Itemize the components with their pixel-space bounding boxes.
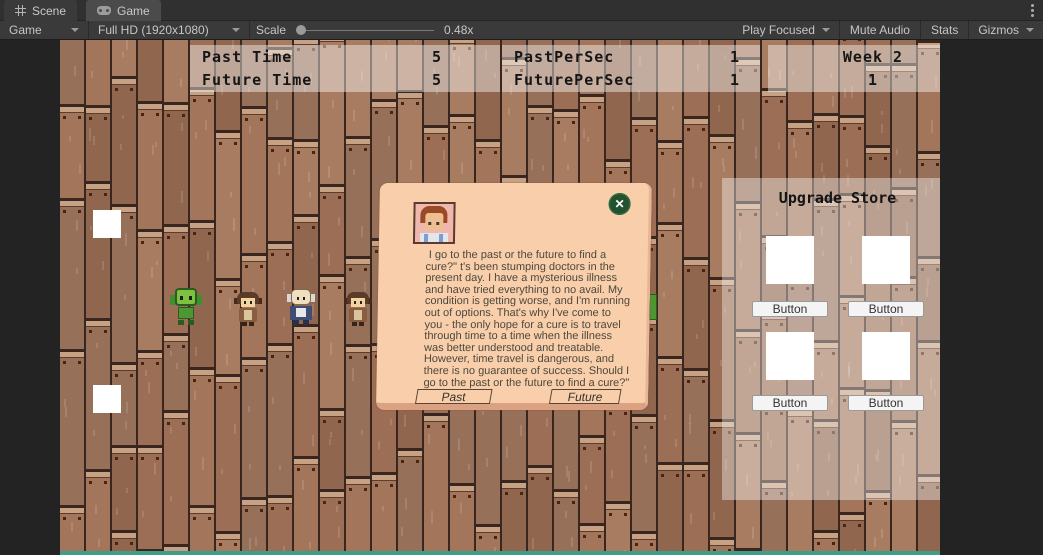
goblin-sprite xyxy=(170,288,202,326)
placeholder-sprite-square xyxy=(93,385,121,413)
floor-plank xyxy=(164,40,188,102)
upgrade-slot-image xyxy=(766,236,814,284)
floor-plank xyxy=(320,277,344,408)
floor-plank xyxy=(320,411,344,489)
floor-plank xyxy=(840,515,864,555)
placeholder-sprite-square xyxy=(93,210,121,238)
floor-plank xyxy=(684,119,708,257)
rate-hud-panel: PastPerSec 1 FuturePerSec 1 xyxy=(502,45,760,92)
tab-game-label: Game xyxy=(117,4,150,18)
future-per-sec-label: FuturePerSec xyxy=(514,71,634,89)
floor-plank xyxy=(190,508,214,555)
character-portrait xyxy=(413,202,456,244)
upgrade-slot-image xyxy=(766,332,814,380)
floor-plank xyxy=(112,448,136,530)
elder-sprite xyxy=(286,289,316,326)
story-dialog: ✕ I go to the past or the future to find… xyxy=(376,183,652,410)
floor-plank xyxy=(658,359,682,462)
floor-plank xyxy=(86,184,110,318)
floor-plank xyxy=(424,416,448,555)
floor-plank xyxy=(684,465,708,555)
floor-plank xyxy=(658,465,682,555)
kebab-menu-icon[interactable] xyxy=(1027,3,1037,19)
scale-value: 0.48x xyxy=(438,23,479,37)
floor-plank xyxy=(580,438,604,523)
floor-plank xyxy=(86,40,110,105)
floor-plank xyxy=(242,109,266,253)
floor-plank xyxy=(60,40,84,104)
gamepad-icon xyxy=(97,6,111,15)
upgrade-button-4[interactable]: Button xyxy=(848,395,924,411)
chevron-down-icon xyxy=(232,28,240,32)
floor-plank xyxy=(60,352,84,505)
floor-plank xyxy=(346,479,370,555)
floor-plank xyxy=(658,143,682,222)
floor-plank xyxy=(190,90,214,220)
floor-plank xyxy=(528,468,552,555)
play-focused-label: Play Focused xyxy=(742,23,815,37)
resolution-dropdown-label: Full HD (1920x1080) xyxy=(98,23,209,37)
floor-plank xyxy=(580,97,604,194)
display-dropdown[interactable]: Game xyxy=(0,21,88,39)
stats-label: Stats xyxy=(931,23,958,37)
game-view-toolbar: Game Full HD (1920x1080) Scale 0.48x Pla… xyxy=(0,21,1043,40)
future-time-label: Future Time xyxy=(202,71,312,89)
upgrade-store-panel: Upgrade Store Button Button Button Butto… xyxy=(722,178,940,500)
past-time-label: Past Time xyxy=(202,48,292,66)
villager-sprite xyxy=(344,292,372,327)
floor-plank xyxy=(684,371,708,462)
floor-plank xyxy=(294,142,318,214)
mute-audio-label: Mute Audio xyxy=(850,23,910,37)
floor-plank xyxy=(86,472,110,555)
week-label: Week 2 xyxy=(768,45,940,68)
floor-plank xyxy=(190,370,214,505)
floor-plank xyxy=(164,105,188,224)
tab-scene[interactable]: Scene xyxy=(4,0,77,21)
bottom-ground-strip xyxy=(60,551,940,555)
editor-tab-bar: Scene Game xyxy=(0,0,1043,21)
floor-plank xyxy=(164,336,188,410)
unity-editor-window: Scene Game Game Full HD (1920x1080) Scal… xyxy=(0,0,1043,555)
floor-plank xyxy=(60,107,84,198)
floor-plank xyxy=(866,493,890,555)
floor-plank xyxy=(86,108,110,181)
floor-plank xyxy=(112,40,136,76)
floor-plank xyxy=(606,504,630,555)
chevron-down-icon xyxy=(1026,28,1034,32)
resolution-dropdown[interactable]: Full HD (1920x1080) xyxy=(89,21,249,39)
stats-button[interactable]: Stats xyxy=(921,21,968,39)
scale-slider[interactable] xyxy=(294,21,436,39)
floor-plank xyxy=(554,112,578,185)
close-button[interactable]: ✕ xyxy=(608,193,630,215)
gizmos-label: Gizmos xyxy=(978,23,1019,37)
future-per-sec-value: 1 xyxy=(730,68,740,92)
mute-audio-button[interactable]: Mute Audio xyxy=(840,21,920,39)
gizmos-dropdown[interactable]: Gizmos xyxy=(969,21,1043,39)
floor-plank xyxy=(372,475,396,555)
floor-plank xyxy=(268,346,292,495)
floor-plank xyxy=(242,360,266,497)
floor-plank xyxy=(138,40,162,101)
floor-plank xyxy=(294,459,318,555)
floor-plank xyxy=(346,347,370,476)
floor-plank xyxy=(684,260,708,368)
floor-plank xyxy=(554,492,578,555)
floor-plank xyxy=(112,79,136,204)
tab-scene-label: Scene xyxy=(32,4,66,18)
floor-plank xyxy=(346,139,370,256)
game-viewport: Past Time 5 Future Time 5 PastPerSec 1 F… xyxy=(60,40,940,555)
dialog-text: I go to the past or the future to find a… xyxy=(423,250,631,389)
floor-plank xyxy=(502,483,526,555)
floor-plank xyxy=(138,232,162,350)
floor-plank xyxy=(294,327,318,456)
past-per-sec-value: 1 xyxy=(730,45,740,69)
time-hud-panel: Past Time 5 Future Time 5 xyxy=(190,45,500,92)
past-button[interactable]: Past xyxy=(415,389,493,404)
scene-grid-icon xyxy=(15,5,26,16)
floor-plank xyxy=(606,403,630,501)
future-button[interactable]: Future xyxy=(549,389,622,404)
tab-game[interactable]: Game xyxy=(86,0,161,21)
week-value: 1 xyxy=(768,68,940,91)
chevron-down-icon xyxy=(71,28,79,32)
upgrade-slot-image xyxy=(862,236,910,284)
upgrade-store-title: Upgrade Store xyxy=(722,189,940,207)
week-hud-panel: Week 2 1 xyxy=(768,45,940,92)
goblin-sprite-partial xyxy=(649,294,657,320)
floor-plank xyxy=(320,187,344,274)
scale-label: Scale xyxy=(250,23,292,37)
slider-track xyxy=(296,30,434,31)
upgrade-button-3[interactable]: Button xyxy=(752,395,828,411)
floor-plank xyxy=(658,225,682,356)
floor-plank xyxy=(268,140,292,241)
future-time-value: 5 xyxy=(432,68,442,92)
floor-plank xyxy=(138,448,162,549)
past-time-value: 5 xyxy=(432,45,442,69)
floor-plank xyxy=(138,104,162,229)
play-focused-dropdown[interactable]: Play Focused xyxy=(733,21,839,39)
floor-plank xyxy=(60,201,84,349)
floor-plank xyxy=(164,413,188,544)
floor-plank xyxy=(216,133,240,278)
floor-plank xyxy=(268,498,292,555)
chevron-down-icon xyxy=(822,28,830,32)
floor-plank xyxy=(60,508,84,555)
upgrade-button-2[interactable]: Button xyxy=(848,301,924,317)
display-dropdown-label: Game xyxy=(9,23,42,37)
floor-plank xyxy=(242,500,266,555)
floor-plank xyxy=(138,353,162,445)
floor-plank xyxy=(216,377,240,531)
upgrade-slot-image xyxy=(862,332,910,380)
floor-plank xyxy=(320,492,344,555)
slider-knob[interactable] xyxy=(296,25,306,35)
villager-sprite xyxy=(234,292,262,327)
past-per-sec-label: PastPerSec xyxy=(514,48,614,66)
floor-plank xyxy=(450,486,474,555)
floor-plank xyxy=(398,451,422,555)
close-icon: ✕ xyxy=(614,197,624,211)
upgrade-button-1[interactable]: Button xyxy=(752,301,828,317)
floor-plank xyxy=(632,417,656,531)
